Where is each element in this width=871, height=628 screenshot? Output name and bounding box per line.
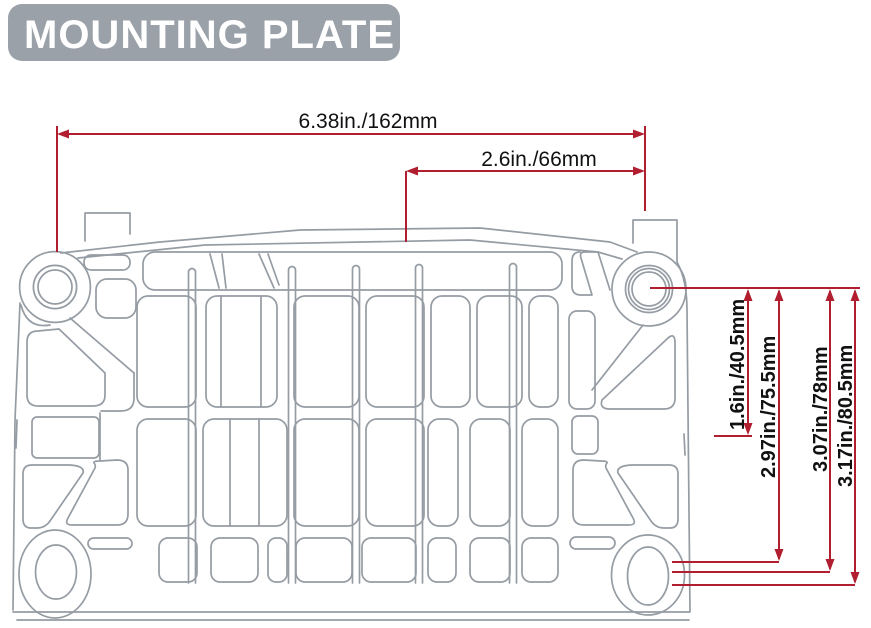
svg-text:2.97in./75.5mm: 2.97in./75.5mm (758, 336, 780, 478)
svg-text:1.6in./40.5mm: 1.6in./40.5mm (727, 299, 749, 430)
svg-text:6.38in./162mm: 6.38in./162mm (299, 110, 438, 133)
svg-text:3.07in./78mm: 3.07in./78mm (810, 346, 832, 472)
svg-text:2.6in./66mm: 2.6in./66mm (481, 148, 597, 171)
svg-text:MOUNTING PLATE: MOUNTING PLATE (24, 13, 395, 57)
svg-text:3.17in./80.5mm: 3.17in./80.5mm (835, 345, 857, 487)
